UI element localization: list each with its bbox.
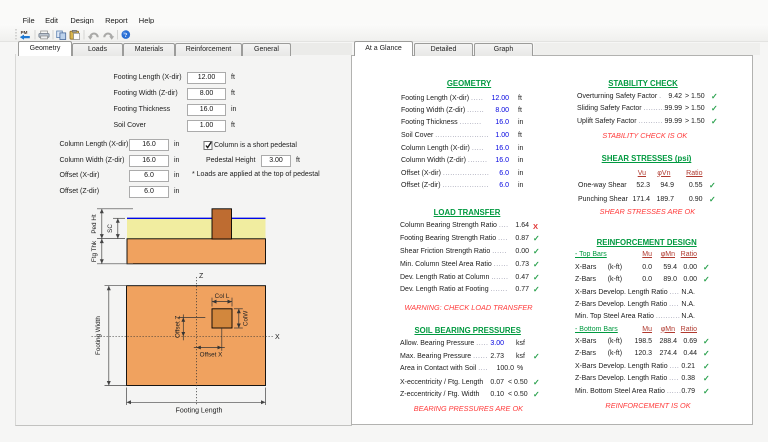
svg-text:Offset Z: Offset Z [175,316,182,338]
svg-text:Footing Width: Footing Width [95,316,102,355]
svg-text:Z: Z [199,273,204,280]
svg-text:SC: SC [107,224,114,233]
svg-text:Offset X: Offset X [200,352,223,359]
svg-text:Ftg Thk: Ftg Thk [91,240,98,262]
svg-text:PM: PM [21,30,28,35]
svg-text:ColW: ColW [242,311,249,326]
svg-text:?: ? [124,32,127,39]
svg-text:Ped Ht: Ped Ht [91,214,98,234]
svg-text:Col L: Col L [215,293,230,300]
svg-text:Footing Length: Footing Length [176,408,223,415]
svg-text:X: X [275,334,280,341]
